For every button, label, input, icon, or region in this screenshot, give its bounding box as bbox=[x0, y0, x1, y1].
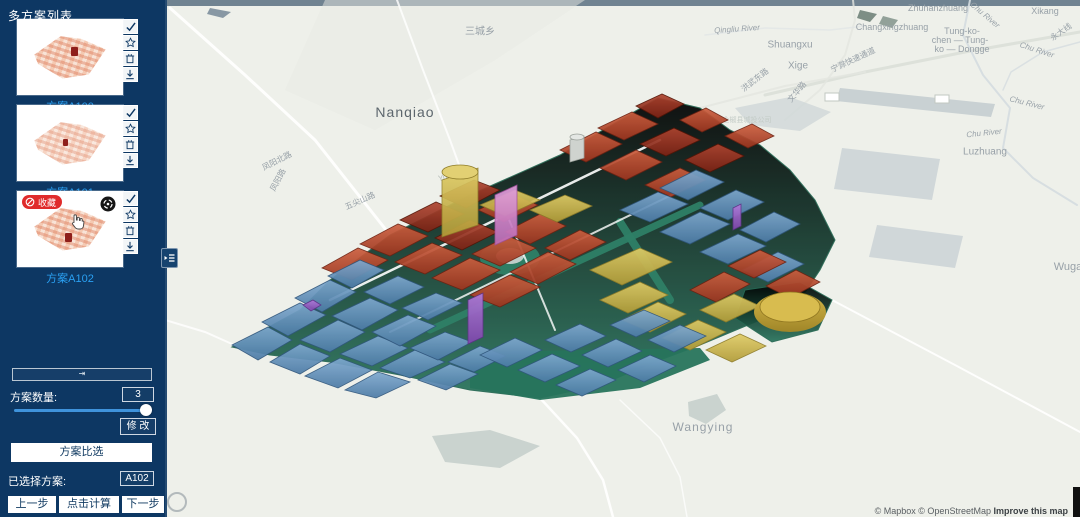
check-icon[interactable] bbox=[122, 191, 138, 206]
selected-scheme-label: 已选择方案: bbox=[8, 473, 66, 489]
trash-icon[interactable] bbox=[122, 223, 138, 238]
panel-handle[interactable] bbox=[161, 248, 178, 268]
scheme-card-a102[interactable]: 收藏 bbox=[17, 191, 123, 267]
trash-icon[interactable] bbox=[122, 51, 138, 66]
trash-icon[interactable] bbox=[122, 137, 138, 152]
compare-schemes-button[interactable]: 方案比选 bbox=[11, 443, 152, 462]
scheme-count-value[interactable]: 3 bbox=[122, 387, 154, 402]
download-icon[interactable] bbox=[122, 67, 138, 82]
selected-scheme-value[interactable]: A102 bbox=[120, 471, 154, 486]
cursor-pointer-icon bbox=[69, 213, 85, 236]
map-canvas[interactable]: 三城乡NanqiaoWangyingShuangxuXigeZhuhanzhua… bbox=[165, 0, 1080, 517]
city-model-3d[interactable] bbox=[165, 0, 1080, 517]
slider-handle[interactable] bbox=[140, 404, 152, 416]
collapse-list-button[interactable]: ⇥ bbox=[12, 368, 152, 381]
scheme-label-a102[interactable]: 方案A102 bbox=[17, 270, 123, 286]
modify-button[interactable]: 修 改 bbox=[120, 418, 156, 435]
scheme-card-a100[interactable] bbox=[17, 19, 123, 95]
check-icon[interactable] bbox=[122, 105, 138, 120]
star-icon[interactable] bbox=[122, 35, 138, 50]
star-icon[interactable] bbox=[122, 207, 138, 222]
favorite-badge: 收藏 bbox=[22, 195, 62, 209]
download-icon[interactable] bbox=[122, 239, 138, 254]
check-icon[interactable] bbox=[122, 19, 138, 34]
calculate-button[interactable]: 点击计算 bbox=[59, 496, 119, 513]
scheme-sidebar: 多方案列表 方案A100 方案A101 收藏 bbox=[0, 0, 167, 517]
scrollbar-sliver[interactable] bbox=[1073, 487, 1080, 517]
scheme-card-a101[interactable] bbox=[17, 105, 123, 181]
locate-icon[interactable] bbox=[100, 196, 116, 212]
scheme-thumbnail bbox=[23, 109, 117, 175]
next-step-button[interactable]: 下一步 bbox=[122, 496, 164, 513]
improve-map-link[interactable]: Improve this map bbox=[993, 506, 1068, 516]
star-icon[interactable] bbox=[122, 121, 138, 136]
list-collapse-icon bbox=[164, 252, 175, 264]
cancel-circle-icon bbox=[25, 197, 35, 207]
map-attribution: © Mapbox © OpenStreetMap Improve this ma… bbox=[875, 506, 1068, 516]
download-icon[interactable] bbox=[122, 153, 138, 168]
prev-step-button[interactable]: 上一步 bbox=[8, 496, 56, 513]
scheme-thumbnail bbox=[23, 23, 117, 89]
scheme-count-slider[interactable] bbox=[14, 409, 152, 412]
scheme-count-label: 方案数量: bbox=[10, 389, 57, 405]
